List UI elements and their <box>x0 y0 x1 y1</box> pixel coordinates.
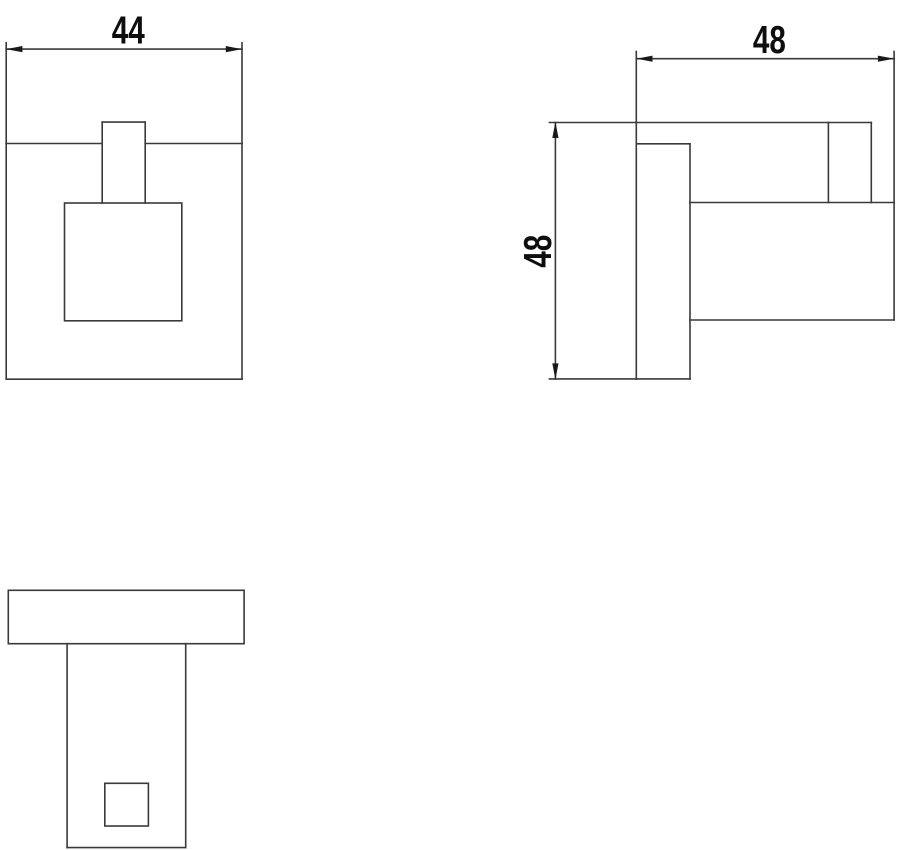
svg-text:44: 44 <box>112 10 145 53</box>
svg-text:48: 48 <box>753 19 786 62</box>
svg-text:48: 48 <box>517 235 560 268</box>
